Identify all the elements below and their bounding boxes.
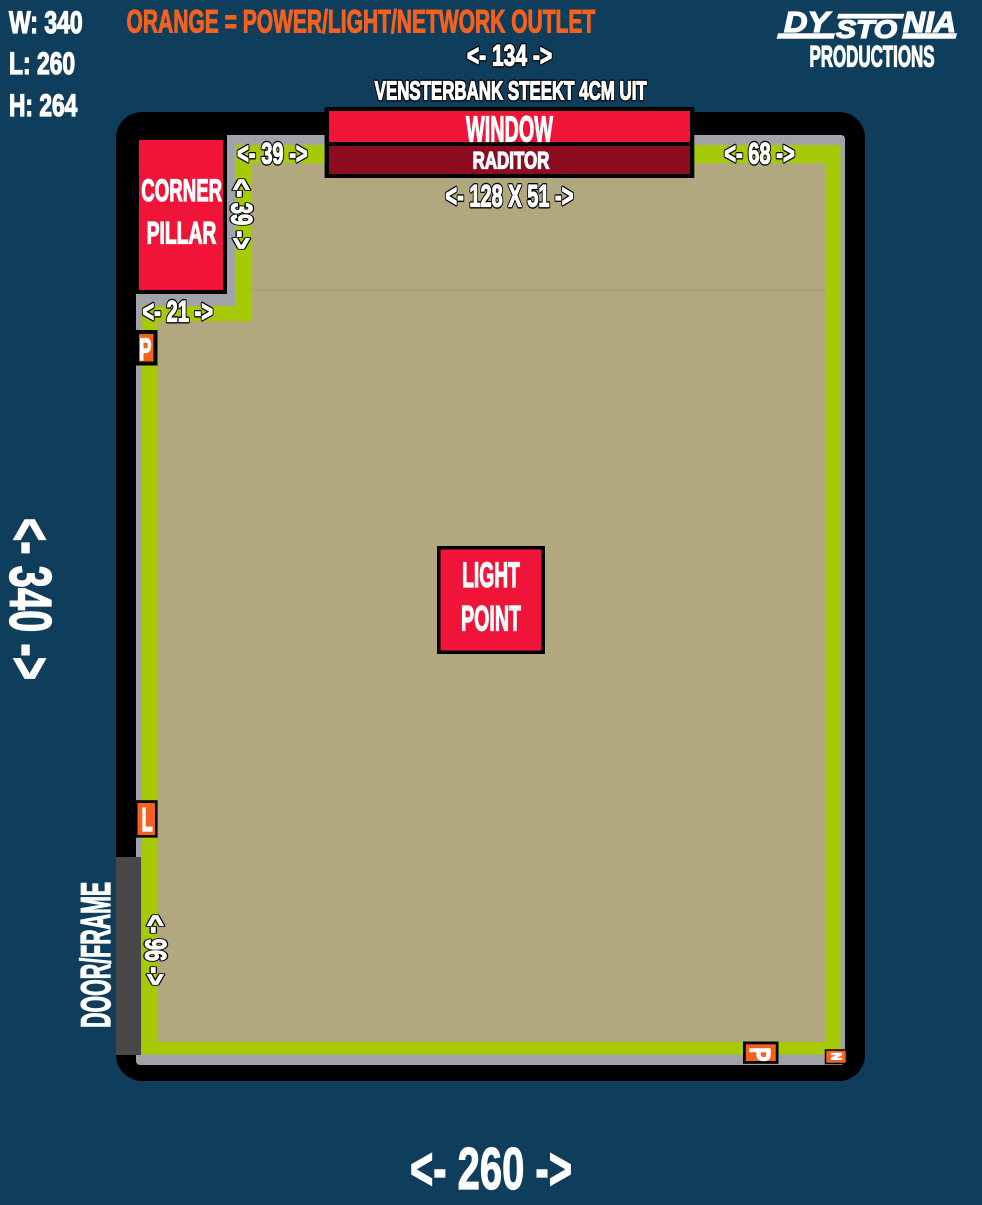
svg-text:P: P <box>139 333 151 367</box>
svg-text:L: L <box>142 801 153 838</box>
svg-text:PILLAR: PILLAR <box>147 215 217 251</box>
svg-text:<- 134 ->: <- 134 -> <box>467 40 552 72</box>
svg-text:NIA: NIA <box>903 7 956 39</box>
svg-text:<- 21 ->: <- 21 -> <box>142 296 213 329</box>
svg-text:<- 260 ->: <- 260 -> <box>410 1135 572 1200</box>
svg-text:P: P <box>743 1047 775 1061</box>
svg-text:WINDOW: WINDOW <box>466 109 553 150</box>
svg-text:LIGHT: LIGHT <box>462 555 520 595</box>
svg-text:STO: STO <box>836 15 898 43</box>
svg-text:CORNER: CORNER <box>141 174 222 208</box>
svg-text:ORANGE = POWER/LIGHT/NETWORK O: ORANGE = POWER/LIGHT/NETWORK OUTLET <box>127 3 596 40</box>
svg-text:H: 264: H: 264 <box>9 87 78 123</box>
svg-text:DY: DY <box>784 6 832 39</box>
svg-text:DOOR/FRAME: DOOR/FRAME <box>73 882 120 1028</box>
svg-text:<- 96 ->: <- 96 -> <box>138 915 171 986</box>
svg-text:N: N <box>828 1053 845 1061</box>
svg-text:<- 39 ->: <- 39 -> <box>224 179 257 250</box>
svg-text:POINT: POINT <box>461 600 521 639</box>
svg-text:<- 340 ->: <- 340 -> <box>0 518 64 680</box>
svg-text:PRODUCTIONS: PRODUCTIONS <box>810 41 935 74</box>
svg-text:<- 39 ->: <- 39 -> <box>237 138 308 171</box>
svg-text:<- 128 X 51 ->: <- 128 X 51 -> <box>445 178 573 214</box>
svg-text:W: 340: W: 340 <box>9 5 83 40</box>
svg-text:RADITOR: RADITOR <box>473 147 550 174</box>
svg-text:<- 68 ->: <- 68 -> <box>724 138 795 171</box>
svg-text:VENSTERBANK STEEKT 4CM UIT: VENSTERBANK STEEKT 4CM UIT <box>375 76 648 106</box>
svg-text:L: 260: L: 260 <box>9 45 75 80</box>
